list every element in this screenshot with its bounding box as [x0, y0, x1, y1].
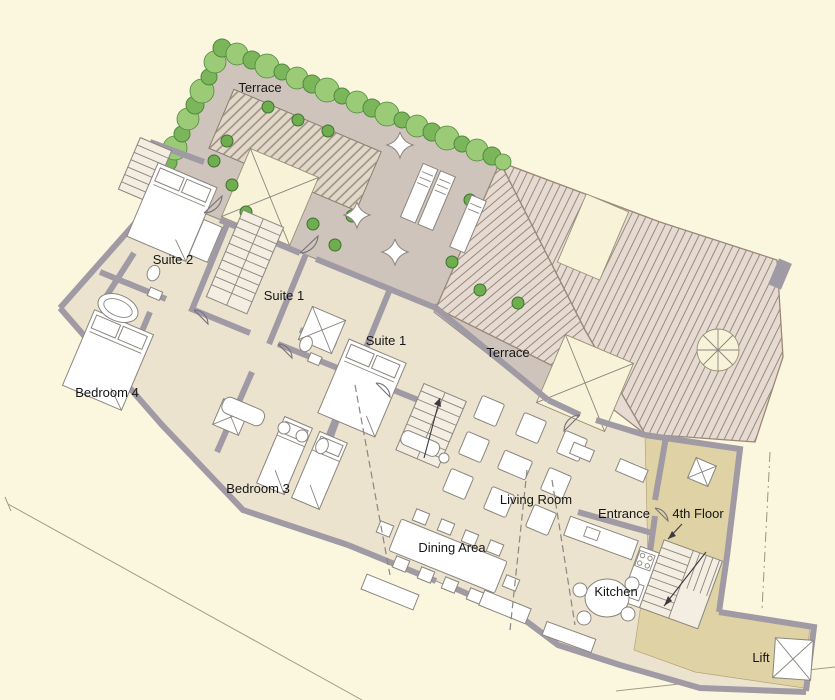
- room-label-suite-1-west: Suite 1: [264, 288, 304, 303]
- room-label-lift: Lift: [752, 650, 770, 665]
- room-label-suite-2: Suite 2: [153, 252, 193, 267]
- room-label-fourth-floor: 4th Floor: [672, 506, 724, 521]
- room-label-living-room: Living Room: [500, 492, 572, 507]
- room-label-kitchen: Kitchen: [594, 584, 637, 599]
- room-label-suite-1-east: Suite 1: [366, 333, 406, 348]
- room-label-bedroom-3: Bedroom 3: [226, 481, 290, 496]
- floor-plan-drawing: Terrace Suite 2 Suite 1 Suite 1 Terrace …: [0, 0, 835, 700]
- room-label-dining-area: Dining Area: [418, 540, 486, 555]
- room-label-terrace-mid: Terrace: [486, 345, 529, 360]
- floor-plan-page: Terrace Suite 2 Suite 1 Suite 1 Terrace …: [0, 0, 835, 700]
- room-label-bedroom-4: Bedroom 4: [75, 385, 139, 400]
- lift-shaft-icon: [773, 638, 814, 681]
- round-roof-window-icon: [697, 329, 739, 371]
- room-label-terrace-top: Terrace: [238, 80, 281, 95]
- room-label-entrance: Entrance: [598, 506, 650, 521]
